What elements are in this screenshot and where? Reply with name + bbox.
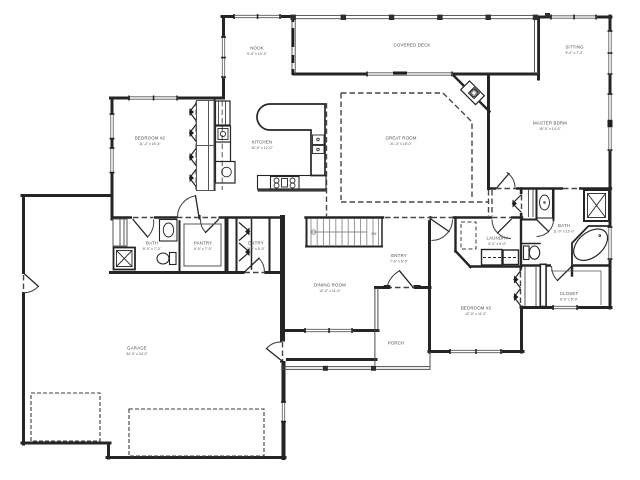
svg-text:SITTING: SITTING (565, 45, 584, 50)
svg-text:7'-0" x 5'-0": 7'-0" x 5'-0" (390, 260, 409, 264)
svg-text:COVERED DECK: COVERED DECK (394, 43, 431, 48)
svg-text:PANTRY: PANTRY (194, 241, 212, 246)
svg-text:NOOK: NOOK (250, 46, 264, 51)
svg-text:12'-0" x 11'-0": 12'-0" x 11'-0" (319, 289, 341, 293)
svg-text:7'-0" x 5'-0": 7'-0" x 5'-0" (247, 247, 266, 251)
svg-text:11'-0" x 12'-0": 11'-0" x 12'-0" (553, 230, 575, 234)
svg-text:GREAT ROOM: GREAT ROOM (385, 136, 416, 141)
svg-text:KITCHEN: KITCHEN (252, 140, 272, 145)
svg-text:GARAGE: GARAGE (127, 346, 147, 351)
svg-text:BEDROOM #3: BEDROOM #3 (461, 306, 492, 311)
svg-text:LAUNDRY: LAUNDRY (487, 236, 509, 241)
svg-text:9'-0" x 7'-0": 9'-0" x 7'-0" (566, 51, 585, 55)
svg-text:15'-0" x 12'-0": 15'-0" x 12'-0" (251, 146, 274, 150)
svg-text:BEDROOM #2: BEDROOM #2 (135, 136, 166, 141)
svg-text:6'-0" x 6'-0": 6'-0" x 6'-0" (489, 242, 508, 246)
svg-text:21'-4" x 15'-0": 21'-4" x 15'-0" (390, 142, 413, 146)
svg-text:BATH: BATH (558, 223, 570, 228)
svg-text:BATH: BATH (146, 241, 158, 246)
svg-text:MASTER BDRM: MASTER BDRM (533, 121, 567, 126)
svg-text:DN: DN (372, 232, 377, 236)
svg-text:ENTRY: ENTRY (248, 241, 264, 246)
svg-text:DINING ROOM: DINING ROOM (314, 283, 346, 288)
svg-text:6'-0" x 5'-0": 6'-0" x 5'-0" (560, 298, 579, 302)
svg-text:9'-0" x 10'-0": 9'-0" x 10'-0" (247, 52, 268, 56)
svg-text:15'-0" x 14'-0": 15'-0" x 14'-0" (539, 127, 562, 131)
svg-text:PORCH: PORCH (388, 341, 405, 346)
svg-text:6'-0" x 7'-0": 6'-0" x 7'-0" (194, 247, 213, 251)
svg-text:ENTRY: ENTRY (391, 253, 407, 258)
svg-text:CLOSET: CLOSET (560, 291, 579, 296)
svg-text:11'-2" x 15'-4": 11'-2" x 15'-4" (139, 142, 161, 146)
svg-text:12'-0" x 11'-0": 12'-0" x 11'-0" (465, 312, 487, 316)
svg-text:8'-0" x 7'-0": 8'-0" x 7'-0" (143, 247, 162, 251)
svg-text:34'-0" x 24'-0": 34'-0" x 24'-0" (126, 352, 149, 356)
